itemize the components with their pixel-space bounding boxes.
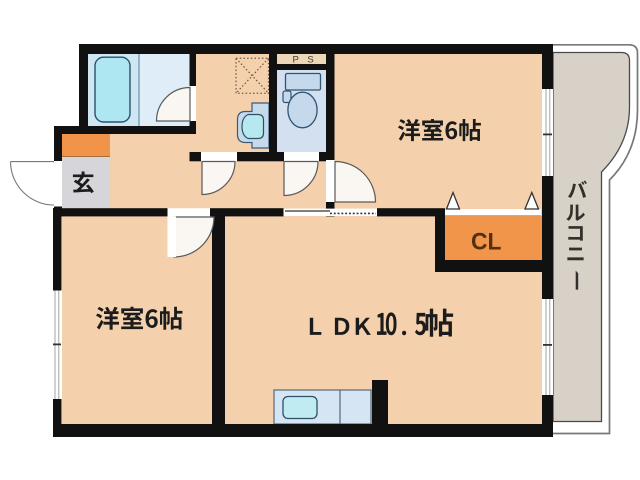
svg-text:CL: CL <box>471 229 502 256</box>
svg-text:PS: PS <box>293 54 323 65</box>
